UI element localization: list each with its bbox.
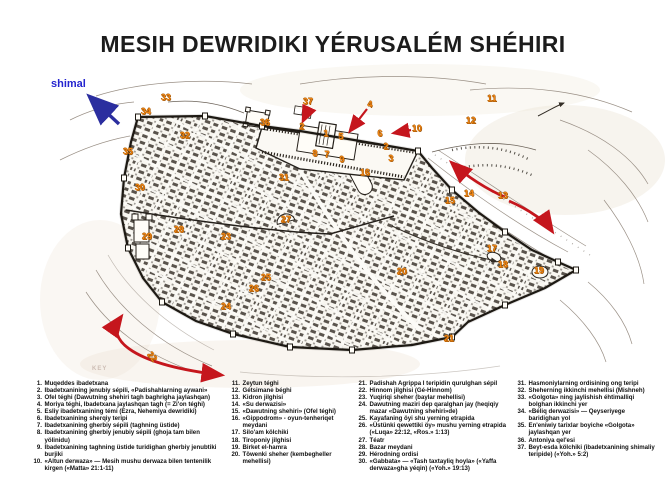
legend-item: 23. Yuqiriqi sheher (baylar mehellisi) [355,394,514,401]
legend-item-text: «Altun derwaza» — Mesih mushu derwaza bi… [45,458,229,472]
legend-item-number: 22. [355,387,367,394]
map-marker: 21 [444,335,454,344]
legend-item: 11. Zeytun téghi [228,380,355,387]
legend-item-number: 35. [514,422,526,436]
legend-item: 14. «Su derwazisi» [228,401,355,408]
legend-item: 12. Gétsimane béghi [228,387,355,394]
legend-item-number: 36. [514,437,526,444]
legend-item: 3. Ofel téghi (Dawutning shehiri tagh ba… [30,394,228,401]
legend-item: 37. Beyt-esda kölchiki (ibadetxanining s… [514,444,662,458]
legend-item-text: Silo'am kölchiki [243,429,356,436]
legend-item: 18. Tiroponiy jilghisi [228,437,355,444]
legend-item-text: Ibadetxanining sherqiy teripi [45,415,229,422]
legend-item-text: Padishah Agrippa I teripidin qurulghan s… [370,380,515,387]
map-marker: 7 [324,151,329,160]
map-marker: 1 [323,130,328,139]
legend-item-text: Beyt-esda kölchiki (ibadetxanining shima… [529,444,663,458]
map-marker: 34 [141,108,151,117]
legend-item: 27. Téatr [355,437,514,444]
legend-item-number: 9. [30,444,42,458]
legend-item-text: Moriya téghi, Ibadetxana jaylashqan tagh… [45,401,229,408]
legend-item-number: 14. [228,401,240,408]
legend-item: 19. Birket el-hamra [228,444,355,451]
map-marker: 5 [338,133,343,142]
legend-item: 1. Muqeddes ibadetxana [30,380,228,387]
legend-item-text: «Gabbata» — «Tash taxtayliq hoyla» («Yaf… [370,458,515,472]
legend-item-text: Kayafaning öyi shu yerning etrapida [370,415,515,422]
legend-item-text: Ibadetxanining jenubiy sépili, «Padishah… [45,387,229,394]
legend-item: 20. Töwenki sheher (kembegheller mehelli… [228,451,355,465]
legend-item: 8. Ibadetxanining gherbiy jenubiy sépili… [30,429,228,443]
legend-item: 31. Hasmoniylarning ordisining ong terip… [514,380,662,387]
legend-item-text: Bazar meydani [370,444,515,451]
map-marker: 37 [303,98,313,107]
legend-item: 33. «Golgota» ning jaylishish éhtimalliq… [514,394,662,408]
legend-item-number: 25. [355,415,367,422]
legend-item: 32. Sheherning ikkinchi mehellisi (Mishn… [514,387,662,394]
pointer-arrow-10 [394,130,411,133]
map-marker: 3 [388,155,393,164]
legend-item-text: En'eniwiy tarixlar boyiche «Golgota» jay… [529,422,663,436]
map-marker: 31 [279,174,289,183]
legend-item-number: 28. [355,444,367,451]
map-marker: 27 [281,216,291,225]
legend-item-text: Antoniya qel'esi [529,437,663,444]
legend-column: 31. Hasmoniylarning ordisining ong terip… [514,380,662,472]
legend-item: 7. Ibadetxanining gherbiy sépili (taghni… [30,422,228,429]
legend-item-text: Töwenki sheher (kembegheller mehellisi) [243,451,356,465]
map-marker: 28 [174,226,184,235]
legend-item-number: 24. [355,401,367,415]
legend-item-text: Ibadetxanining gherbiy jenubiy sépili (g… [45,429,229,443]
legend: 1. Muqeddes ibadetxana 2. Ibadetxanining… [30,380,662,472]
legend-item-text: Yuqiriqi sheher (baylar mehellisi) [370,394,515,401]
legend-item-number: 15. [228,408,240,415]
legend-item: 16. «Gippodrom» - oyun-tenheriqet meydan… [228,415,355,429]
legend-item-number: 34. [514,408,526,422]
map-marker: 20 [397,268,407,277]
north-label: shimal [51,78,86,90]
legend-item-text: Kidron jilghisi [243,394,356,401]
legend-item-text: Hinnom jilghisi (Gé-Hinnom) [370,387,515,394]
legend-item-number: 1. [30,380,42,387]
legend-item-number: 37. [514,444,526,458]
legend-item-number: 26. [355,422,367,436]
legend-item: 35. En'eniwiy tarixlar boyiche «Golgota»… [514,422,662,436]
legend-item: 10. «Altun derwaza» — Mesih mushu derwaz… [30,458,228,472]
legend-item: 2. Ibadetxanining jenubiy sépili, «Padis… [30,387,228,394]
map-marker: 33 [161,94,171,103]
legend-column: 21. Padishah Agrippa I teripidin qurulgh… [355,380,514,472]
legend-item-text: «Su derwazisi» [243,401,356,408]
map-marker: 35 [123,148,133,157]
legend-item-number: 4. [30,401,42,408]
legend-item-number: 13. [228,394,240,401]
legend-item-text: Dawutning maziri dep qaralghan jay (heqi… [370,401,515,415]
legend-item-text: «Béliq derwazisi» — Qeyseriyege baridigh… [529,408,663,422]
legend-item-number: 30. [355,458,367,472]
page-title: MESIH DEWRIDIKI YÉRUSALÉM SHÉHIRI [0,31,666,58]
legend-item-number: 20. [228,451,240,465]
legend-item-number: 23. [355,394,367,401]
legend-column: 11. Zeytun téghi 12. Gétsimane béghi 13.… [228,380,355,472]
legend-item-text: «Gippodrom» - oyun-tenheriqet meydani [243,415,356,429]
legend-item: 34. «Béliq derwazisi» — Qeyseriyege bari… [514,408,662,422]
legend-item-text: «Üstünki qewettiki öy» mushu yerning etr… [370,422,515,436]
map-marker: 11 [487,95,497,104]
map-marker: 17 [487,245,497,254]
map-marker: 13 [498,192,508,201]
legend-item: 21. Padishah Agrippa I teripidin qurulgh… [355,380,514,387]
map-marker: 29 [142,233,152,242]
legend-item-number: 29. [355,451,367,458]
legend-item-text: Sheherning ikkinchi mehellisi (Mishneh) [529,387,663,394]
legend-item-text: Hasmoniylarning ordisining ong teripi [529,380,663,387]
legend-item: 13. Kidron jilghisi [228,394,355,401]
legend-item-number: 6. [30,415,42,422]
legend-item-number: 33. [514,394,526,408]
legend-item: 4. Moriya téghi, Ibadetxana jaylashqan t… [30,401,228,408]
legend-item: 15. «Dawutning shehiri» (Ofel téghi) [228,408,355,415]
map-marker: 15 [445,197,455,206]
map-marker: 8 [312,150,317,159]
map-marker: 26 [249,285,259,294]
legend-item-text: Ibadetxanining taghning üstide turidigha… [45,444,229,458]
map-marker: 23 [221,233,231,242]
legend-item-number: 32. [514,387,526,394]
legend-item-text: Esliy ibadetxanining témi (Ezra, Nehemiy… [45,408,229,415]
legend-item-number: 16. [228,415,240,429]
legend-item: 9. Ibadetxanining taghning üstide turidi… [30,444,228,458]
map-marker: 6 [377,130,382,139]
legend-item: 24. Dawutning maziri dep qaralghan jay (… [355,401,514,415]
legend-item-text: Birket el-hamra [243,444,356,451]
map-marker: 2 [383,143,388,152]
map-marker: 24 [221,303,231,312]
legend-item: 5. Esliy ibadetxanining témi (Ezra, Nehe… [30,408,228,415]
watermark: KEY [92,366,107,372]
legend-item-number: 3. [30,394,42,401]
page: MESIH DEWRIDIKI YÉRUSALÉM SHÉHIRI shimal… [0,0,666,490]
legend-item: 28. Bazar meydani [355,444,514,451]
map-marker: 25 [261,274,271,283]
legend-item-text: «Dawutning shehiri» (Ofel téghi) [243,408,356,415]
legend-item-text: Tiroponiy jilghisi [243,437,356,444]
map-marker: 9 [339,156,344,165]
legend-item-number: 7. [30,422,42,429]
legend-item-text: Gétsimane béghi [243,387,356,394]
north-arrow-icon [90,97,119,124]
map-marker: 14 [464,190,474,199]
map-marker: 12 [466,117,476,126]
legend-item-text: Zeytun téghi [243,380,356,387]
legend-item-text: Ofel téghi (Dawutning shehiri tagh baghr… [45,394,229,401]
legend-item: 26. «Üstünki qewettiki öy» mushu yerning… [355,422,514,436]
legend-item-number: 10. [30,458,42,472]
legend-item-number: 17. [228,429,240,436]
legend-item-number: 5. [30,408,42,415]
legend-item-text: Hérodning ordisi [370,451,515,458]
legend-item: 36. Antoniya qel'esi [514,437,662,444]
map-marker: 4 [367,101,372,110]
legend-item: 25. Kayafaning öyi shu yerning etrapida [355,415,514,422]
map-marker: 36 [260,119,270,128]
legend-item-number: 18. [228,437,240,444]
map-marker: 10 [412,125,422,134]
map-marker: 19 [534,267,544,276]
map-marker: 18 [498,261,508,270]
legend-item: 30. «Gabbata» — «Tash taxtayliq hoyla» (… [355,458,514,472]
legend-item-number: 27. [355,437,367,444]
legend-item-text: Muqeddes ibadetxana [45,380,229,387]
map-marker: 30 [135,184,145,193]
legend-item-number: 2. [30,387,42,394]
legend-item-number: 8. [30,429,42,443]
legend-item-text: «Golgota» ning jaylishish éhtimalliqi bo… [529,394,663,408]
legend-item-number: 19. [228,444,240,451]
legend-item: 29. Hérodning ordisi [355,451,514,458]
legend-item: 22. Hinnom jilghisi (Gé-Hinnom) [355,387,514,394]
legend-item-text: Ibadetxanining gherbiy sépili (taghning … [45,422,229,429]
legend-column: 1. Muqeddes ibadetxana 2. Ibadetxanining… [30,380,228,472]
legend-item-number: 12. [228,387,240,394]
legend-item-number: 11. [228,380,240,387]
legend-item: 17. Silo'am kölchiki [228,429,355,436]
map-marker: 16 [360,169,370,178]
legend-item-number: 21. [355,380,367,387]
legend-item-number: 31. [514,380,526,387]
map-marker: 32 [180,132,190,141]
legend-item: 6. Ibadetxanining sherqiy teripi [30,415,228,422]
legend-item-text: Téatr [370,437,515,444]
map-marker: 2 [299,123,304,132]
